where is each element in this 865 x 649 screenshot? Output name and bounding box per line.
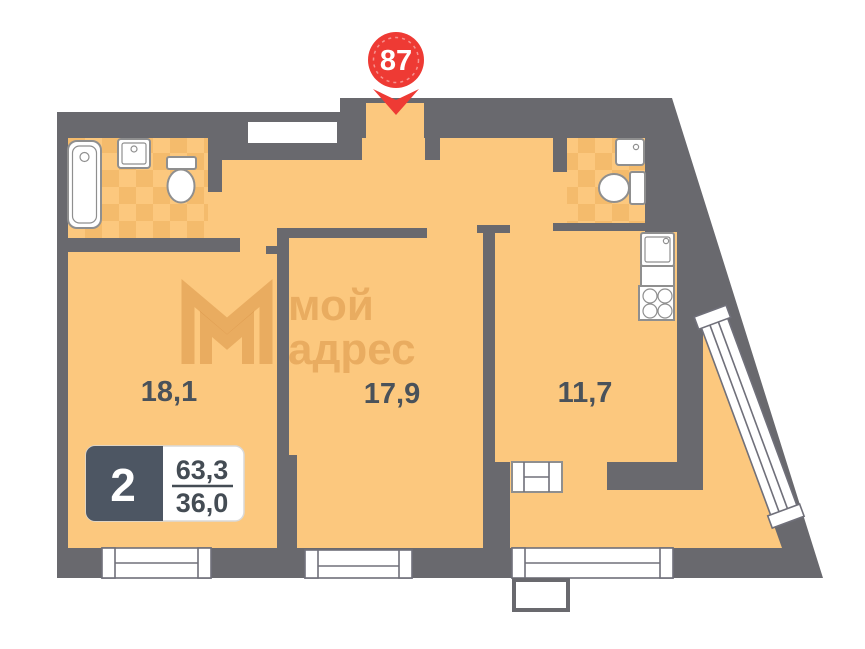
- window-room-11-7: [512, 548, 673, 578]
- window-room-17-9: [305, 550, 412, 578]
- room2-top-wall-stub: [477, 225, 510, 233]
- room-label-17-9: 17,9: [364, 378, 420, 410]
- balcony-box: [514, 580, 568, 610]
- bathroom-toilet-icon: [168, 170, 195, 203]
- room-label-18-1: 18,1: [141, 376, 197, 408]
- wc-toilet-icon: [599, 174, 629, 202]
- partition-room2-room3-pier: [483, 462, 510, 548]
- kitchen-side-wall: [677, 232, 703, 490]
- kitchen-bottom-wall: [607, 462, 677, 490]
- pin-number: 87: [380, 45, 412, 77]
- kitchen-unit: [639, 233, 674, 320]
- wc-sink-icon: [616, 139, 644, 165]
- bathroom-bottom-wall: [57, 238, 240, 252]
- floor-plan-svg: мой адрес 18,1 17,9 11,7 2 63,3 36,0 87: [0, 0, 865, 649]
- kitchen-counter: [641, 266, 674, 286]
- partition-room2-room3: [483, 233, 495, 462]
- living-area-value: 36,0: [176, 488, 229, 518]
- total-area-value: 63,3: [176, 455, 229, 485]
- entrance-side-pier: [425, 138, 440, 160]
- hall-stub: [266, 246, 277, 254]
- room-label-11-7: 11,7: [558, 377, 613, 409]
- info-box: 2 63,3 36,0: [86, 446, 244, 521]
- wc-toilet-tank: [630, 172, 645, 204]
- bathroom-right-wall: [208, 138, 222, 192]
- wc-left-wall: [553, 138, 567, 172]
- wc-bottom-wall: [553, 223, 650, 231]
- watermark-text-line1: мой: [288, 281, 374, 330]
- shaft-box: [512, 462, 562, 492]
- watermark-text-line2: адрес: [288, 325, 416, 374]
- room2-top-wall: [277, 228, 427, 238]
- niche: [248, 122, 337, 143]
- partition-room1-room2-pier: [277, 455, 297, 548]
- floor-plan-page: мой адрес 18,1 17,9 11,7 2 63,3 36,0 87: [0, 0, 865, 649]
- rooms-count-value: 2: [110, 459, 136, 511]
- bathroom-toilet-tank: [167, 157, 196, 169]
- window-room-18-1: [102, 548, 211, 578]
